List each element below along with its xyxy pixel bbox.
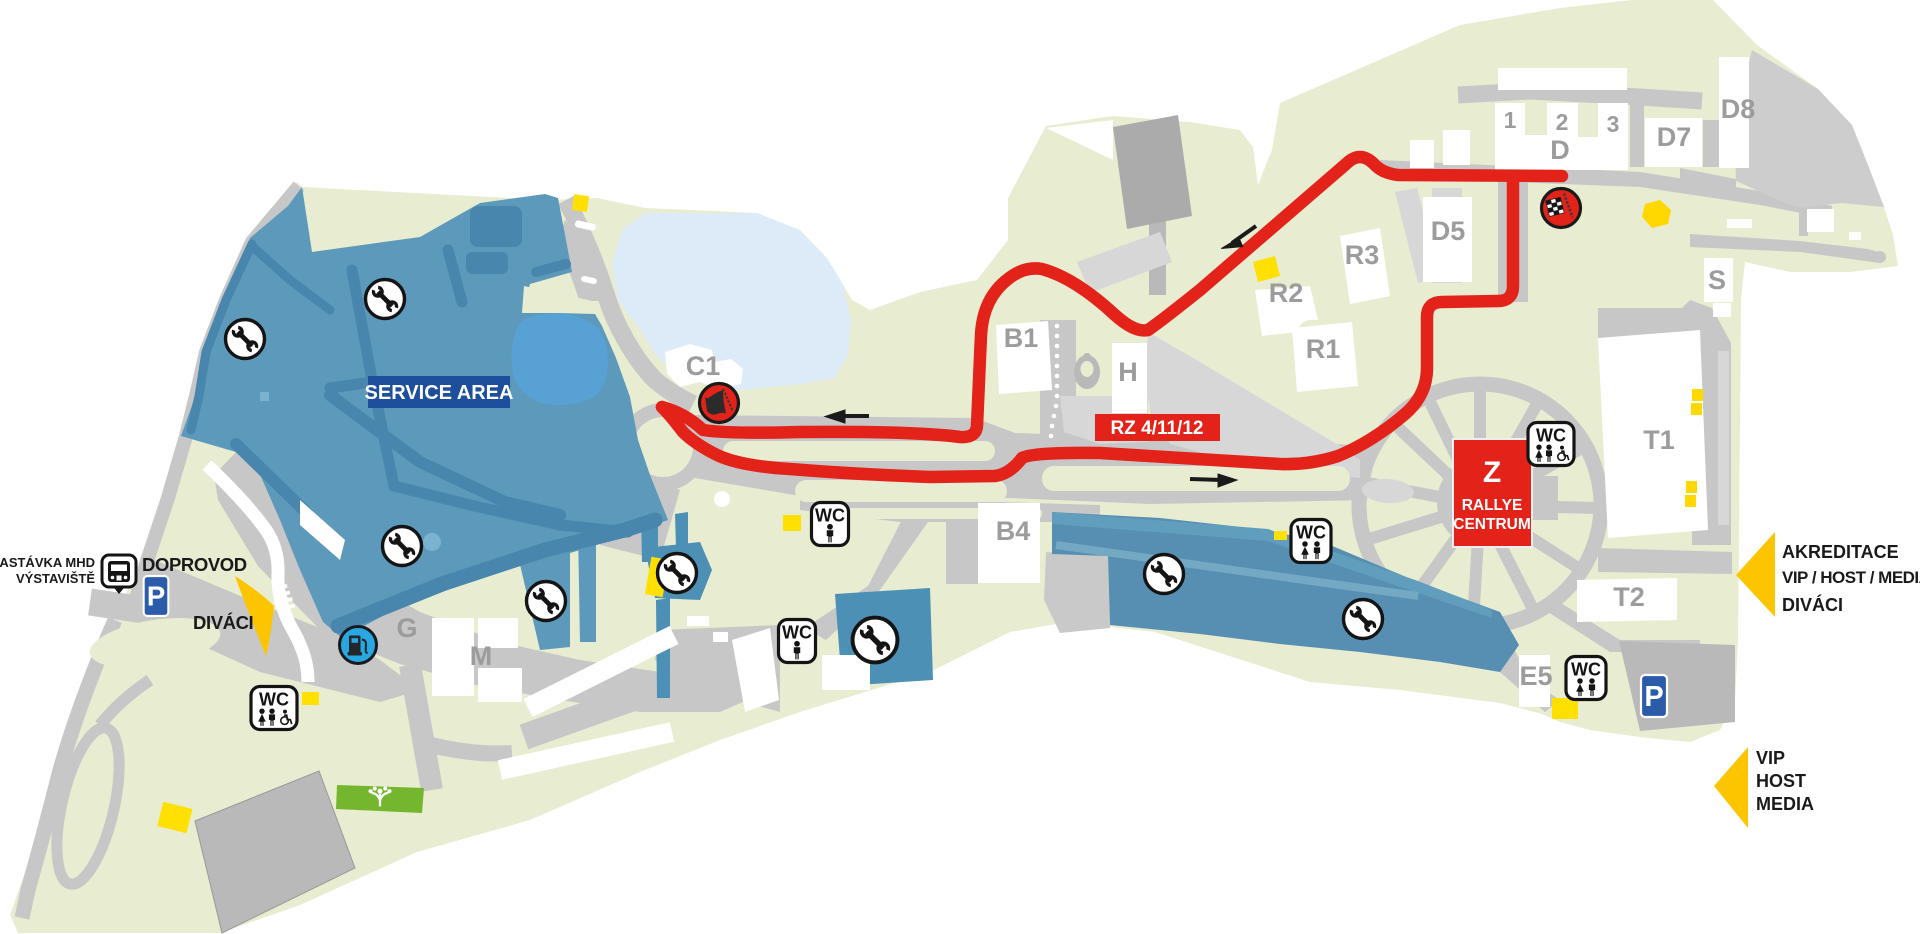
- svg-text:T2: T2: [1613, 582, 1645, 612]
- svg-text:ZASTÁVKA MHD: ZASTÁVKA MHD: [0, 555, 95, 570]
- svg-text:T1: T1: [1643, 425, 1675, 455]
- svg-text:VIP / HOST / MEDIA: VIP / HOST / MEDIA: [1782, 568, 1920, 587]
- svg-text:H: H: [1118, 357, 1138, 387]
- svg-text:R3: R3: [1345, 240, 1380, 270]
- svg-text:1: 1: [1504, 107, 1517, 133]
- svg-text:RALLYE: RALLYE: [1462, 497, 1523, 514]
- svg-text:MEDIA: MEDIA: [1756, 794, 1814, 814]
- svg-text:B1: B1: [1004, 323, 1039, 353]
- svg-text:B4: B4: [996, 516, 1031, 546]
- svg-text:3: 3: [1607, 111, 1620, 137]
- svg-text:R1: R1: [1306, 334, 1341, 364]
- svg-text:HOST: HOST: [1756, 771, 1806, 791]
- svg-text:D: D: [1550, 135, 1570, 165]
- svg-text:E5: E5: [1519, 661, 1552, 691]
- svg-text:Z: Z: [1483, 456, 1501, 489]
- svg-text:DOPROVOD: DOPROVOD: [142, 554, 247, 575]
- svg-text:D8: D8: [1721, 94, 1756, 124]
- svg-text:G: G: [396, 613, 417, 643]
- svg-text:AKREDITACE: AKREDITACE: [1782, 542, 1899, 562]
- svg-text:2: 2: [1556, 109, 1569, 135]
- svg-text:DIVÁCI: DIVÁCI: [193, 612, 253, 633]
- svg-text:M: M: [470, 641, 493, 671]
- svg-text:VIP: VIP: [1756, 748, 1785, 768]
- svg-text:D5: D5: [1431, 216, 1466, 246]
- svg-text:VÝSTAVIŠTĚ: VÝSTAVIŠTĚ: [16, 571, 95, 586]
- svg-text:RZ 4/11/12: RZ 4/11/12: [1111, 418, 1204, 439]
- svg-text:SERVICE AREA: SERVICE AREA: [365, 382, 514, 404]
- svg-text:CENTRUM: CENTRUM: [1453, 516, 1531, 533]
- svg-text:D7: D7: [1657, 122, 1692, 152]
- svg-text:R2: R2: [1269, 278, 1304, 308]
- svg-text:S: S: [1708, 265, 1726, 295]
- svg-text:DIVÁCI: DIVÁCI: [1782, 594, 1843, 615]
- svg-text:C1: C1: [686, 351, 721, 381]
